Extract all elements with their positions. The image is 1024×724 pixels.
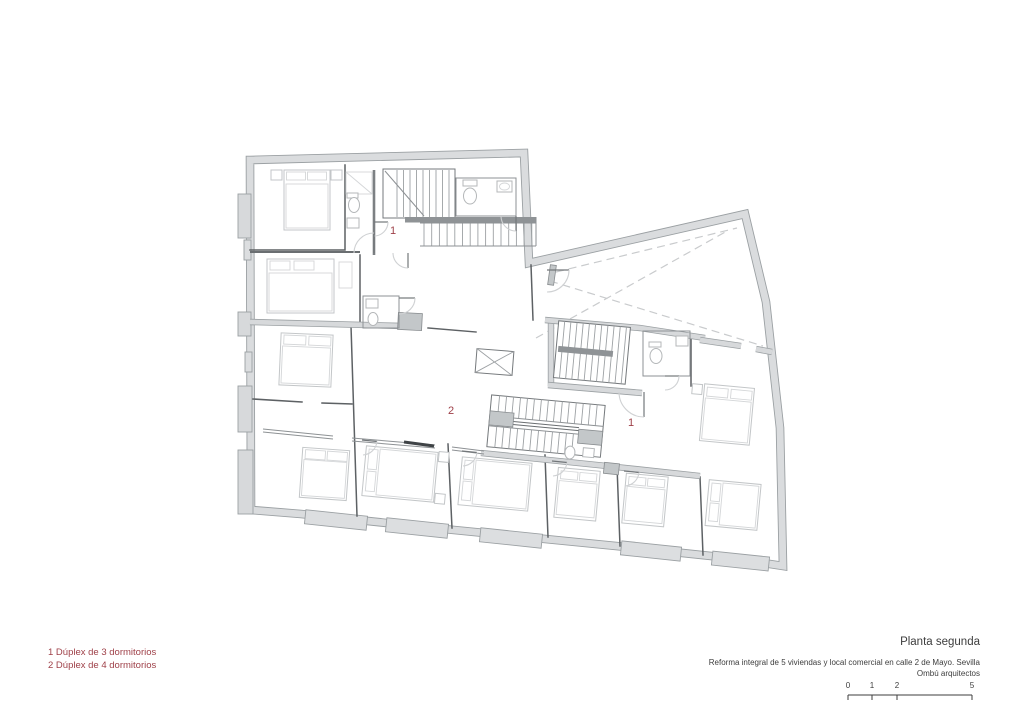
project-subtitle: Reforma integral de 5 viviendas y local … (709, 657, 980, 668)
legend: 1 Dúplex de 3 dormitorios 2 Dúplex de 4 … (48, 647, 156, 672)
title-block: Planta segunda Reforma integral de 5 viv… (709, 636, 980, 679)
scale-label-0: 0 (841, 681, 855, 690)
bed (705, 480, 761, 531)
bed (458, 457, 532, 511)
facade-pilasters (238, 194, 253, 514)
stair-right (553, 321, 630, 384)
bed (622, 473, 668, 527)
unit-label-3: 1 (628, 417, 634, 429)
elevator-shaft (475, 349, 514, 376)
scale-label-1: 1 (865, 681, 879, 690)
floor-plan (0, 0, 1024, 724)
bed (279, 333, 333, 387)
unit-label-1: 1 (390, 225, 396, 237)
legend-item-2: 2 Dúplex de 4 dormitorios (48, 660, 156, 673)
bed (271, 170, 342, 230)
scale-label-2: 2 (890, 681, 904, 690)
scale-bar-graphic (840, 674, 990, 706)
unit-label-2: 2 (448, 405, 454, 417)
bed (299, 447, 349, 500)
bed (362, 445, 449, 504)
legend-item-1: 1 Dúplex de 3 dormitorios (48, 647, 156, 660)
sheet-title: Planta segunda (709, 636, 980, 648)
bed (687, 383, 754, 445)
scale-label-5: 5 (965, 681, 979, 690)
drawing-sheet: 1 2 1 1 Dúplex de 3 dormitorios 2 Dúplex… (0, 0, 1024, 724)
stair-top (383, 169, 536, 246)
bed (267, 259, 352, 313)
bed (554, 467, 600, 521)
